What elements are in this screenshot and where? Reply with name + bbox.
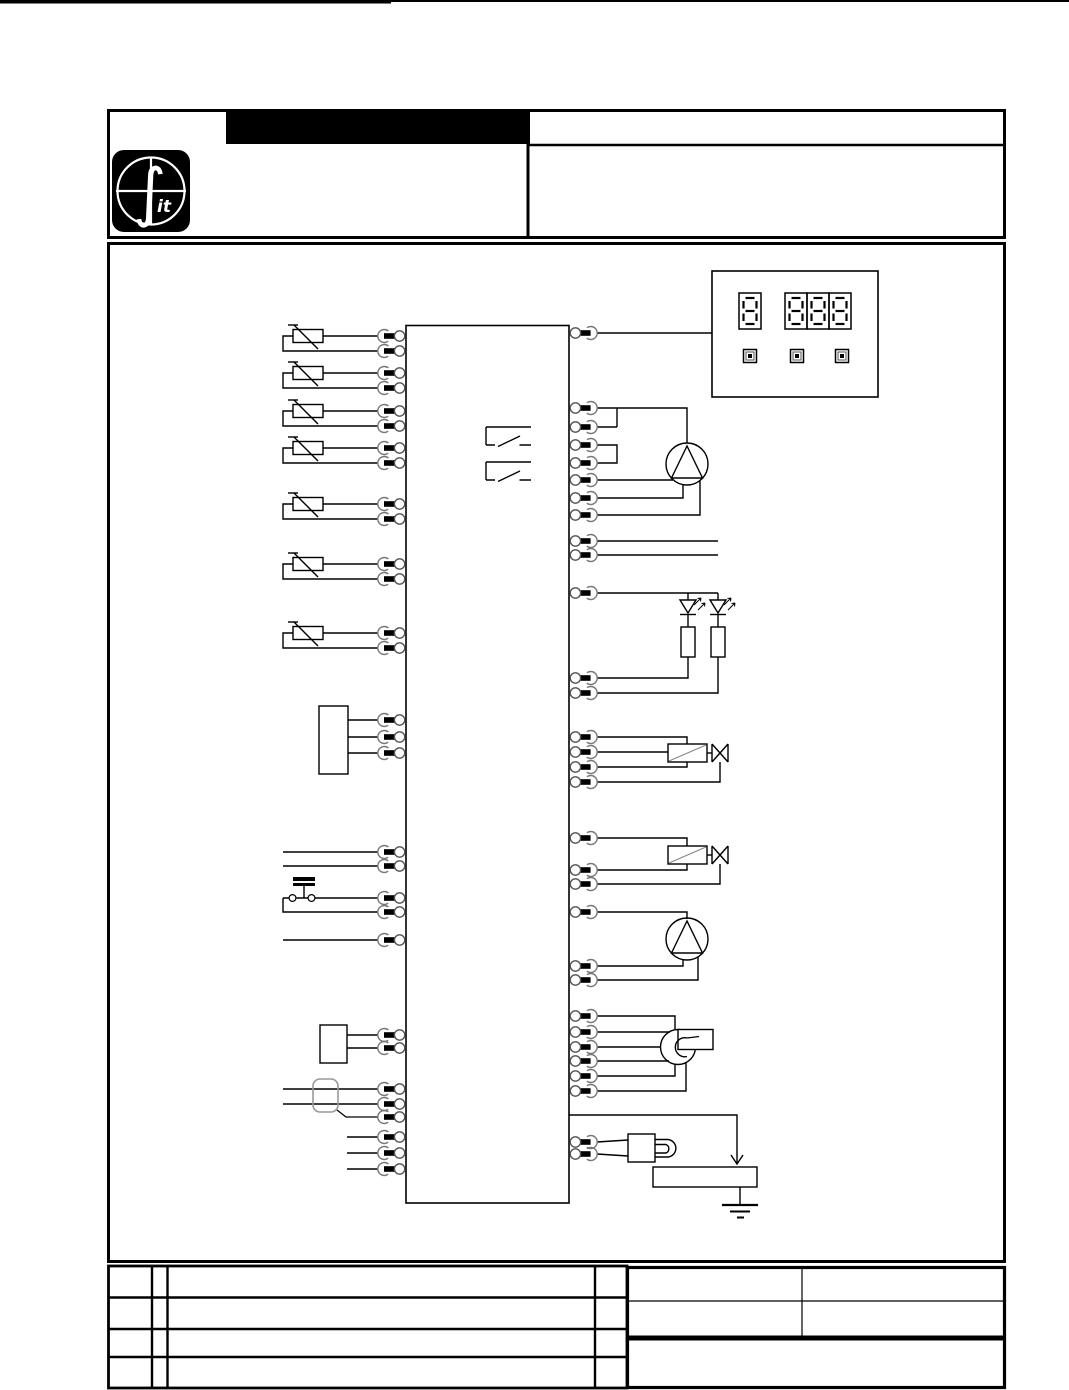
ntc-thermistor-icon — [283, 553, 378, 579]
connector-pin-left — [378, 558, 405, 571]
connector-pin-right — [570, 549, 597, 562]
ntc-thermistor-icon — [283, 622, 378, 648]
connector-pin-right — [570, 1070, 597, 1083]
valve-icon — [712, 744, 728, 762]
connector-pin-right — [570, 1136, 597, 1149]
connector-pin-left — [378, 420, 405, 433]
connector-pin-left — [378, 1029, 405, 1042]
led-icon — [680, 598, 705, 615]
connector-pin-right — [570, 776, 597, 789]
title-block-right-table — [627, 1267, 1005, 1388]
connector-pin-left — [378, 906, 405, 919]
fan-blower — [597, 1016, 713, 1091]
seven-segment-digit — [739, 293, 761, 329]
connector-pin-left — [378, 573, 405, 586]
connector-pin-right — [570, 960, 597, 973]
connector-pin-left — [378, 642, 405, 655]
valve-icon — [712, 846, 728, 864]
ntc-thermistor-icon — [283, 400, 378, 426]
connector-pin-right — [570, 439, 597, 452]
connector-pin-left — [378, 1147, 405, 1160]
connector-pin-left — [378, 330, 405, 343]
connector-pin-left — [378, 860, 405, 873]
right-connector-pins — [570, 327, 597, 1161]
burner-bar — [653, 1167, 757, 1187]
connector-pin-right — [570, 878, 597, 891]
ntc-thermistor-icon — [283, 493, 378, 519]
logo-integral-glyph: ∫ — [133, 156, 166, 230]
connector-pin-right — [570, 421, 597, 434]
gas-valve-2 — [597, 838, 728, 884]
display-unit — [597, 271, 878, 397]
connector-pin-right — [570, 327, 597, 340]
wiring-diagram: ∫ it — [0, 0, 1069, 1390]
connector-pin-left — [378, 442, 405, 455]
relay-contact-2 — [486, 462, 531, 482]
connector-pin-right — [570, 672, 597, 685]
display-button — [744, 350, 757, 363]
ntc-thermistor-icon — [283, 325, 378, 351]
connector-pin-right — [570, 1010, 597, 1023]
connector-pin-right — [570, 402, 597, 415]
burner-ground — [569, 1115, 758, 1218]
connector-pin-left — [378, 1083, 405, 1096]
display-button — [836, 350, 849, 363]
spark-igniter — [597, 1134, 676, 1162]
ntc-thermistor-icon — [283, 437, 378, 463]
connector-pin-left — [378, 731, 405, 744]
connector-pin-right — [570, 974, 597, 987]
ntc-thermistor-icon — [283, 362, 378, 388]
pump-2 — [597, 912, 708, 980]
connector-pin-right — [570, 1055, 597, 1068]
connector-pin-right — [570, 746, 597, 759]
resistor-icon — [681, 627, 695, 657]
ferrite-filter — [283, 1079, 378, 1117]
led-icon — [710, 598, 735, 615]
aux-line-pair — [597, 541, 718, 555]
connector-pin-right — [570, 509, 597, 522]
input-block-3wire — [319, 706, 378, 774]
earth-ground-icon — [722, 1205, 758, 1218]
title-block-left-table — [108, 1266, 627, 1388]
connector-pin-left — [378, 747, 405, 760]
connector-pin-right — [570, 864, 597, 877]
led-indicators — [597, 593, 735, 693]
schematic-sheet: ∫ it — [0, 0, 1069, 1390]
controller-board — [406, 326, 569, 1204]
input-block-2wire — [320, 1025, 378, 1063]
connector-pin-left — [378, 367, 405, 380]
connector-pin-right — [570, 1148, 597, 1161]
sit-logo: ∫ it — [112, 150, 190, 232]
title-block — [108, 1266, 1005, 1388]
connector-pin-right — [570, 761, 597, 774]
connector-pin-left — [378, 457, 405, 470]
connector-pin-left — [378, 892, 405, 905]
display-buttons — [744, 350, 849, 363]
connector-pin-right — [570, 492, 597, 505]
seven-segment-digit — [785, 293, 807, 329]
connector-pin-left — [378, 846, 405, 859]
connector-pin-left — [378, 498, 405, 511]
pump-1 — [597, 408, 708, 515]
gas-valve-1 — [597, 737, 728, 782]
logo-text: it — [157, 197, 172, 217]
thermistor-inputs — [283, 325, 378, 648]
connector-pin-right — [570, 587, 597, 600]
connector-pin-left — [378, 627, 405, 640]
header: ∫ it — [109, 110, 1005, 238]
connector-pin-left — [378, 934, 405, 947]
seven-segment-digit — [829, 293, 851, 329]
connector-pin-right — [570, 1085, 597, 1098]
connector-pin-right — [570, 832, 597, 845]
header-title-bar — [226, 110, 530, 144]
connector-pin-right — [570, 687, 597, 700]
connector-pin-right — [570, 457, 597, 470]
input-line-pair — [283, 852, 378, 866]
connector-pin-left — [378, 1111, 405, 1124]
connector-pin-left — [378, 345, 405, 358]
relay-contact-1 — [486, 427, 531, 447]
left-connector-pins — [378, 330, 405, 1176]
connector-pin-right — [570, 1026, 597, 1039]
connector-pin-left — [378, 382, 405, 395]
connector-pin-left — [378, 1042, 405, 1055]
top-rule — [0, 0, 1069, 4]
connector-pin-left — [378, 513, 405, 526]
connector-pin-left — [378, 405, 405, 418]
display-button — [791, 350, 804, 363]
connector-pin-right — [570, 474, 597, 487]
seven-segment-digit — [807, 293, 829, 329]
input-line-triple — [347, 1137, 378, 1169]
pressure-switch — [283, 877, 378, 912]
fan-icon — [661, 1030, 714, 1065]
connector-pin-left — [378, 1163, 405, 1176]
connector-pin-right — [570, 906, 597, 919]
connector-pin-left — [378, 1131, 405, 1144]
seven-segment-digits — [739, 293, 851, 329]
resistor-icon — [711, 627, 725, 657]
connector-pin-right — [570, 731, 597, 744]
connector-pin-left — [378, 1098, 405, 1111]
connector-pin-left — [378, 714, 405, 727]
connector-pin-right — [570, 535, 597, 548]
connector-pin-right — [570, 1041, 597, 1054]
